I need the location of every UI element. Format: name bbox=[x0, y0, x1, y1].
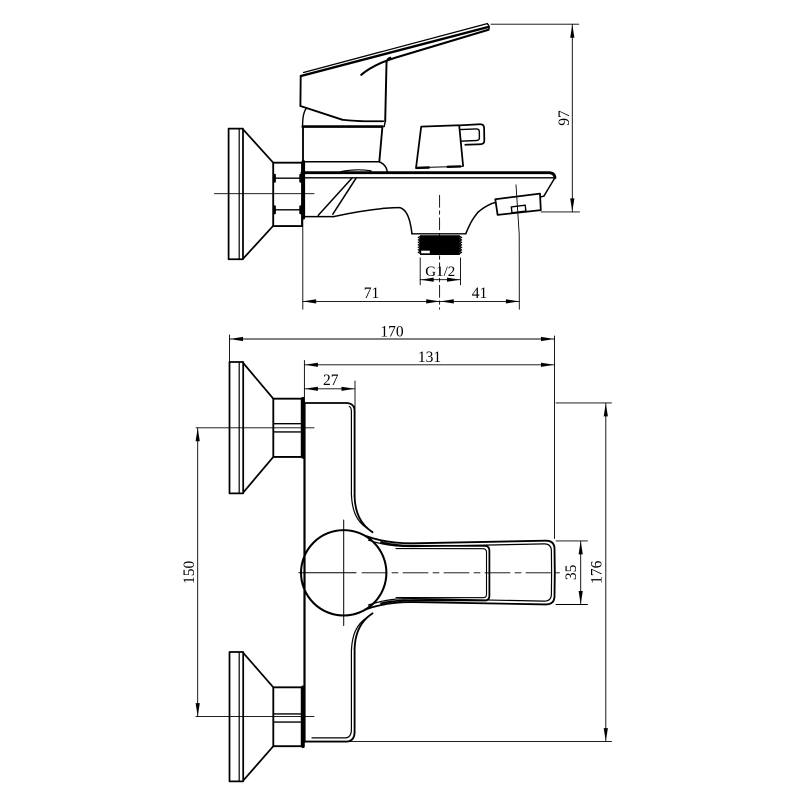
svg-text:27: 27 bbox=[323, 372, 339, 389]
svg-text:41: 41 bbox=[472, 285, 488, 302]
svg-text:131: 131 bbox=[418, 349, 441, 366]
svg-text:170: 170 bbox=[380, 324, 404, 341]
svg-text:97: 97 bbox=[556, 110, 573, 126]
svg-text:150: 150 bbox=[181, 560, 198, 584]
svg-text:71: 71 bbox=[364, 285, 380, 302]
svg-text:G1/2: G1/2 bbox=[425, 264, 455, 280]
svg-text:35: 35 bbox=[563, 564, 580, 580]
svg-text:176: 176 bbox=[588, 560, 605, 584]
